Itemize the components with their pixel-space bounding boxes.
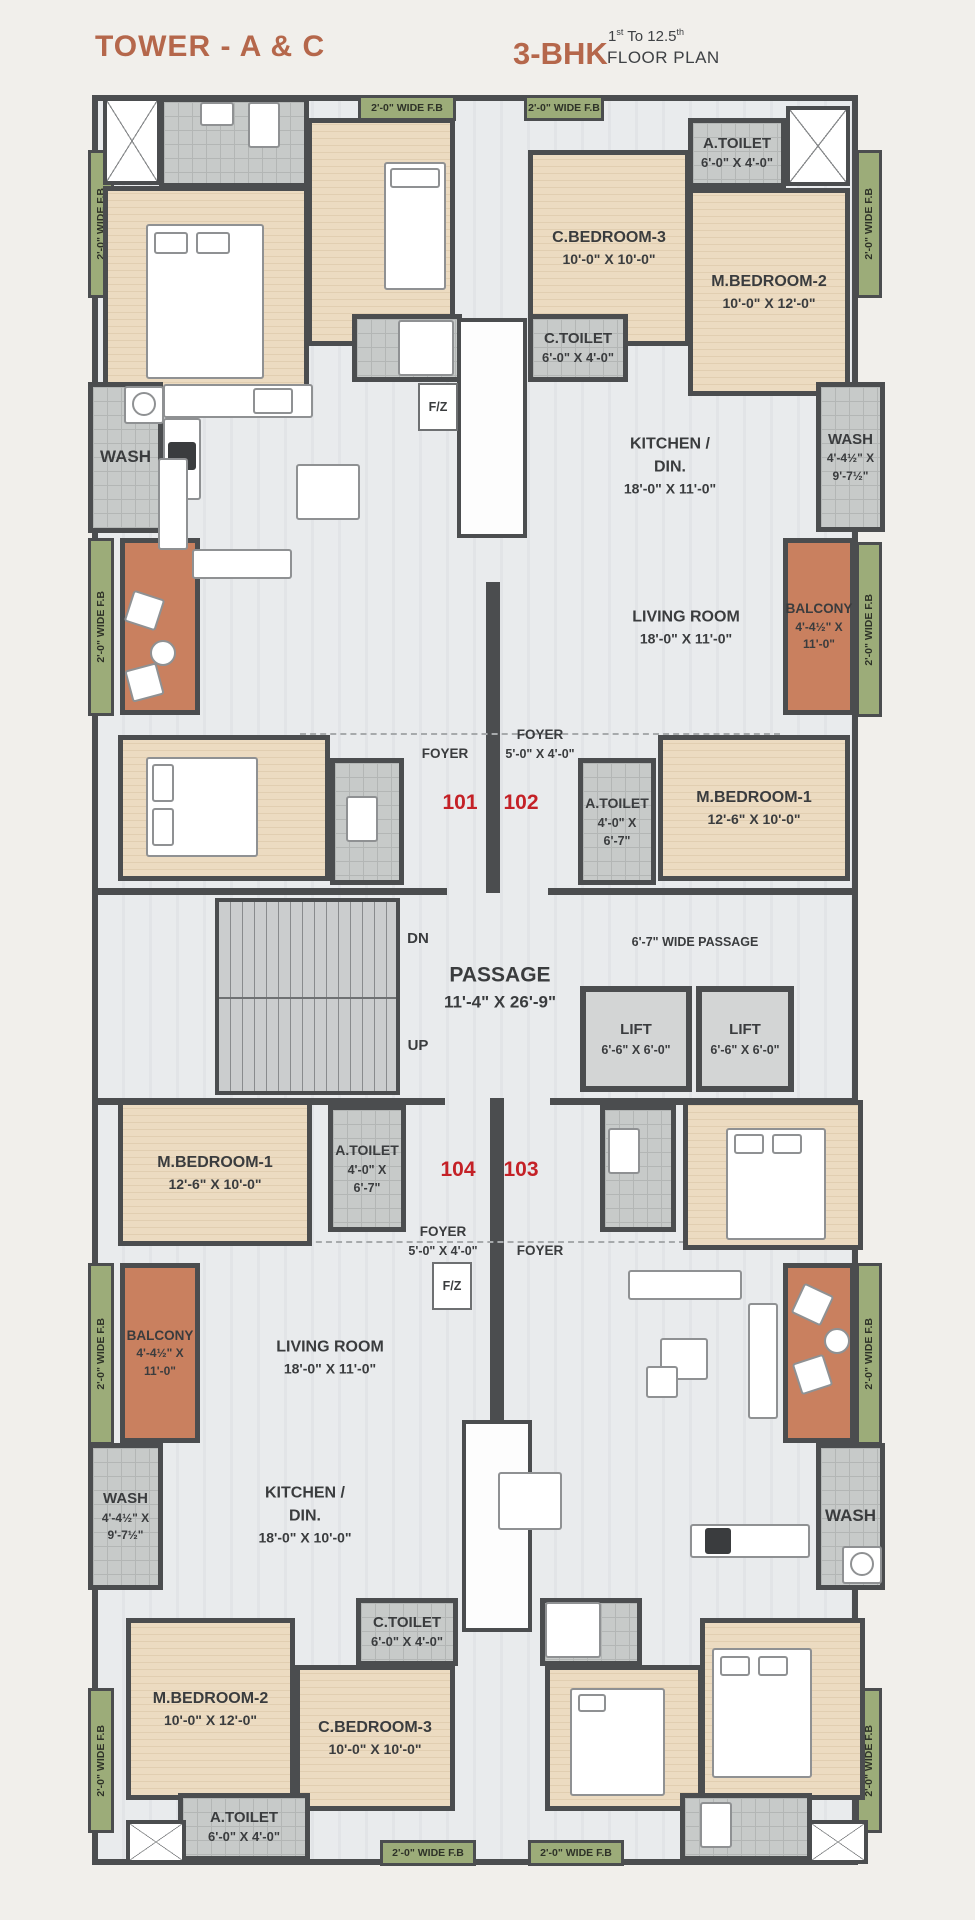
a-toilet-104b-name: A.TOILET	[210, 1807, 278, 1829]
toilet-seat	[608, 1128, 640, 1174]
pillow	[578, 1694, 606, 1712]
c-toilet-102-dims: 6'-0" X 4'-0"	[542, 349, 614, 368]
sofa	[748, 1303, 778, 1419]
fb-strip-left-4: 2'-0" WIDE F.B	[88, 1688, 114, 1833]
a-toilet-102: A.TOILET 6'-0" X 4'-0"	[688, 118, 786, 188]
balcony-102-dims2: 11'-0"	[803, 636, 835, 653]
pillow	[154, 232, 188, 254]
bathtub	[545, 1602, 601, 1658]
wash-104-name: WASH	[103, 1488, 148, 1510]
lift-2: LIFT 6'-6" X 6'-0"	[696, 986, 794, 1092]
fb-strip-top-right: 2'-0" WIDE F.B	[524, 95, 604, 121]
toilet-101	[159, 97, 309, 188]
a-toilet-small-102-name: A.TOILET	[585, 793, 649, 813]
balcony-102-dims1: 4'-4½" X	[795, 619, 842, 636]
fz-bottom-label: F/Z	[443, 1277, 462, 1295]
m-bedroom2-104-name: M.BEDROOM-2	[153, 1687, 269, 1710]
a-toilet-102-dims: 6'-0" X 4'-0"	[701, 154, 773, 173]
wall-center-top	[486, 582, 500, 893]
balcony-104-dims1: 4'-4½" X	[136, 1345, 183, 1362]
pillow	[772, 1134, 802, 1154]
wash-102-dims2: 9'-7½"	[833, 468, 869, 485]
c-bedroom3-104-dims: 10'-0" X 10'-0"	[328, 1739, 421, 1759]
sofa	[192, 549, 292, 579]
pillow	[758, 1656, 788, 1676]
pillow	[196, 232, 230, 254]
pillow	[720, 1656, 750, 1676]
balcony-table	[150, 640, 176, 666]
fb-strip-bottom-right: 2'-0" WIDE F.B	[528, 1840, 624, 1866]
bathtub	[398, 320, 454, 376]
fb-strip-bottom-left: 2'-0" WIDE F.B	[380, 1840, 476, 1866]
kitchen-din-104-label: KITCHEN / DIN. 18'-0" X 10'-0"	[258, 1482, 351, 1549]
unit-number-104: 104	[440, 1158, 475, 1182]
stairs-up-label: UP	[408, 1035, 429, 1057]
floor-range-label: 1st To 12.5th	[608, 27, 684, 45]
m-bedroom-1-102: M.BEDROOM-1 12'-6" X 10'-0"	[658, 735, 850, 881]
pillow	[152, 764, 174, 802]
dining-table	[296, 464, 360, 520]
floor-plan-label: FLOOR PLAN	[607, 48, 720, 68]
stairs-dn-label: DN	[407, 928, 429, 950]
a-toilet-small-104-dims1: 4'-0" X	[348, 1161, 387, 1179]
living-room-104-label: LIVING ROOM 18'-0" X 11'-0"	[276, 1335, 384, 1378]
page-title: TOWER - A & C	[95, 30, 325, 64]
a-toilet-small-104: A.TOILET 4'-0" X 6'-7"	[328, 1105, 406, 1232]
a-toilet-104b-dims: 6'-0" X 4'-0"	[208, 1828, 280, 1847]
lift-1: LIFT 6'-6" X 6'-0"	[580, 986, 692, 1092]
washing-machine-drum	[850, 1552, 874, 1576]
wash-104-dims1: 4'-4½" X	[102, 1510, 149, 1527]
m-bedroom2-104-dims: 10'-0" X 12'-0"	[164, 1710, 257, 1730]
balcony-table	[824, 1328, 850, 1354]
wall-center-bottom	[490, 1098, 504, 1420]
unit-number-101: 101	[442, 791, 477, 815]
wash-102-dims1: 4'-4½" X	[827, 450, 874, 467]
wash-103-label: WASH	[825, 1504, 876, 1529]
m-bedroom2-102-name: M.BEDROOM-2	[711, 270, 827, 293]
pillow	[734, 1134, 764, 1154]
wash-101-label: WASH	[100, 445, 151, 470]
lift-1-name: LIFT	[620, 1019, 652, 1041]
wide-passage-label: 6'-7" WIDE PASSAGE	[632, 933, 759, 951]
stove	[705, 1528, 731, 1554]
dining-table	[498, 1472, 562, 1530]
balcony-102-name: BALCONY	[786, 599, 853, 619]
duct-shaft-103	[808, 1820, 868, 1864]
stair-landing-line	[219, 997, 396, 999]
fb-strip-left-3: 2'-0" WIDE F.B	[88, 1263, 114, 1445]
fz-top-label: F/Z	[429, 398, 448, 416]
unit-number-102: 102	[503, 791, 538, 815]
washing-machine-drum	[132, 392, 156, 416]
lift-1-dims: 6'-6" X 6'-0"	[601, 1041, 670, 1059]
c-bedroom3-104-name: C.BEDROOM-3	[318, 1716, 432, 1739]
bhk-label: 3-BHK	[513, 36, 608, 72]
pillow	[152, 808, 174, 846]
c-toilet-104: C.TOILET 6'-0" X 4'-0"	[356, 1598, 458, 1666]
wall-passage-top-right	[548, 888, 853, 895]
a-toilet-102-name: A.TOILET	[703, 133, 771, 155]
wash-104: WASH 4'-4½" X 9'-7½"	[88, 1443, 163, 1590]
foyer-102-label: FOYER 5'-0" X 4'-0"	[505, 725, 574, 763]
m-bedroom1-104-dims: 12'-6" X 10'-0"	[168, 1174, 261, 1194]
a-toilet-small-104-name: A.TOILET	[335, 1140, 399, 1160]
m-bedroom-2-102: M.BEDROOM-2 10'-0" X 12'-0"	[688, 188, 850, 396]
lift-2-dims: 6'-6" X 6'-0"	[710, 1041, 779, 1059]
fridge-box-top: F/Z	[418, 383, 458, 431]
a-toilet-small-102: A.TOILET 4'-0" X 6'-7"	[578, 758, 656, 885]
m-bedroom1-104-name: M.BEDROOM-1	[157, 1151, 273, 1174]
wash-102-name: WASH	[828, 429, 873, 451]
c-bedroom3-102-dims: 10'-0" X 10'-0"	[562, 249, 655, 269]
a-toilet-small-102-dims2: 6'-7"	[604, 832, 631, 850]
toilet-seat	[346, 796, 378, 842]
a-toilet-104-bottom: A.TOILET 6'-0" X 4'-0"	[178, 1793, 310, 1861]
duct-shaft-101	[103, 97, 161, 185]
fridge-box-bottom: F/Z	[432, 1262, 472, 1310]
duct-shaft-104	[126, 1820, 186, 1864]
foyer-104-label: FOYER 5'-0" X 4'-0"	[408, 1222, 477, 1260]
lift-2-name: LIFT	[729, 1019, 761, 1041]
m-bedroom1-102-name: M.BEDROOM-1	[696, 786, 812, 809]
kitchen-sink	[253, 388, 293, 414]
balcony-104-name: BALCONY	[127, 1326, 194, 1346]
passage-label: PASSAGE 11'-4" X 26'-9"	[444, 960, 556, 1015]
m-bedroom-2-104: M.BEDROOM-2 10'-0" X 12'-0"	[126, 1618, 295, 1800]
kitchen-din-102-label: KITCHEN / DIN. 18'-0" X 11'-0"	[624, 433, 716, 500]
staircase	[215, 898, 400, 1095]
a-toilet-small-104-dims2: 6'-7"	[354, 1179, 381, 1197]
sofa	[628, 1270, 742, 1300]
wash-104-dims2: 9'-7½"	[108, 1527, 144, 1544]
c-toilet-102-name: C.TOILET	[544, 328, 612, 350]
sofa	[158, 458, 188, 550]
fb-strip-left-2: 2'-0" WIDE F.B	[88, 538, 114, 716]
fb-strip-right-1: 2'-0" WIDE F.B	[856, 150, 882, 298]
toilet-seat	[248, 102, 280, 148]
balcony-104: BALCONY 4'-4½" X 11'-0"	[120, 1263, 200, 1443]
central-shaft-top	[457, 318, 527, 538]
foyer-103-label: FOYER	[517, 1241, 564, 1261]
c-bedroom3-102-name: C.BEDROOM-3	[552, 226, 666, 249]
c-toilet-104-dims: 6'-0" X 4'-0"	[371, 1633, 443, 1652]
foyer-101-label: FOYER	[422, 744, 469, 764]
toilet-seat	[700, 1802, 732, 1848]
m-bedroom2-102-dims: 10'-0" X 12'-0"	[722, 293, 815, 313]
fb-strip-right-3: 2'-0" WIDE F.B	[856, 1263, 882, 1445]
wall-passage-top-left	[95, 888, 447, 895]
duct-shaft-102	[786, 106, 850, 186]
balcony-102: BALCONY 4'-4½" X 11'-0"	[783, 538, 855, 715]
fb-strip-right-2: 2'-0" WIDE F.B	[856, 542, 882, 717]
m-bedroom1-102-dims: 12'-6" X 10'-0"	[707, 809, 800, 829]
pillow	[390, 168, 440, 188]
balcony-104-dims2: 11'-0"	[144, 1363, 176, 1380]
wash-102: WASH 4'-4½" X 9'-7½"	[816, 382, 885, 532]
c-bedroom-3-104: C.BEDROOM-3 10'-0" X 10'-0"	[295, 1665, 455, 1811]
unit-number-103: 103	[503, 1158, 538, 1182]
coffee-table	[646, 1366, 678, 1398]
m-bedroom-1-104: M.BEDROOM-1 12'-6" X 10'-0"	[118, 1100, 312, 1246]
a-toilet-small-102-dims1: 4'-0" X	[598, 814, 637, 832]
c-toilet-104-name: C.TOILET	[373, 1612, 441, 1634]
living-room-102-label: LIVING ROOM 18'-0" X 11'-0"	[632, 605, 740, 648]
c-toilet-102: C.TOILET 6'-0" X 4'-0"	[528, 314, 628, 382]
basin	[200, 102, 234, 126]
